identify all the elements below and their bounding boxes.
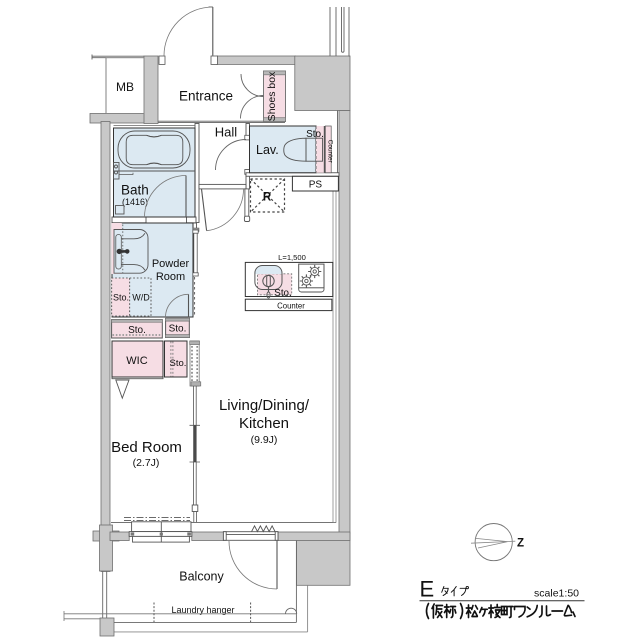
svg-text:Powder: Powder (152, 258, 190, 270)
svg-text:(1416): (1416) (122, 197, 148, 207)
svg-text:Sto.: Sto. (170, 358, 187, 369)
svg-text:Counter: Counter (277, 301, 305, 310)
svg-text:Shoes box: Shoes box (266, 71, 278, 121)
svg-text:Kitchen: Kitchen (239, 415, 289, 432)
svg-text:Bed Room: Bed Room (111, 439, 182, 456)
svg-text:Sto.: Sto. (274, 288, 291, 299)
svg-text:scale1:50: scale1:50 (534, 588, 579, 600)
svg-text:Sto.: Sto. (169, 323, 187, 334)
svg-text:Entrance: Entrance (179, 89, 233, 104)
svg-text:Lav.: Lav. (256, 143, 279, 157)
svg-text:Hall: Hall (215, 125, 238, 140)
svg-text:Counter: Counter (326, 140, 333, 164)
svg-text:Sto.: Sto. (128, 325, 146, 336)
svg-text:Z: Z (517, 538, 524, 550)
svg-text:PS: PS (309, 179, 323, 190)
svg-text:Room: Room (156, 271, 185, 283)
svg-text:(2.7J): (2.7J) (133, 457, 160, 469)
svg-text:WIC: WIC (126, 355, 147, 367)
svg-text:E: E (420, 577, 435, 602)
svg-text:Balcony: Balcony (179, 570, 224, 584)
svg-text:L=1,500: L=1,500 (278, 253, 306, 262)
svg-text:Laundry hanger: Laundry hanger (171, 605, 234, 615)
svg-text:R: R (263, 192, 272, 204)
svg-text:Living/Dining/: Living/Dining/ (219, 397, 310, 414)
svg-text:MB: MB (116, 80, 134, 94)
svg-text:(9.9J): (9.9J) (251, 434, 278, 446)
svg-text:Sto.: Sto. (113, 292, 129, 302)
svg-text:W/D: W/D (132, 292, 150, 302)
svg-text:Bath: Bath (121, 183, 149, 198)
